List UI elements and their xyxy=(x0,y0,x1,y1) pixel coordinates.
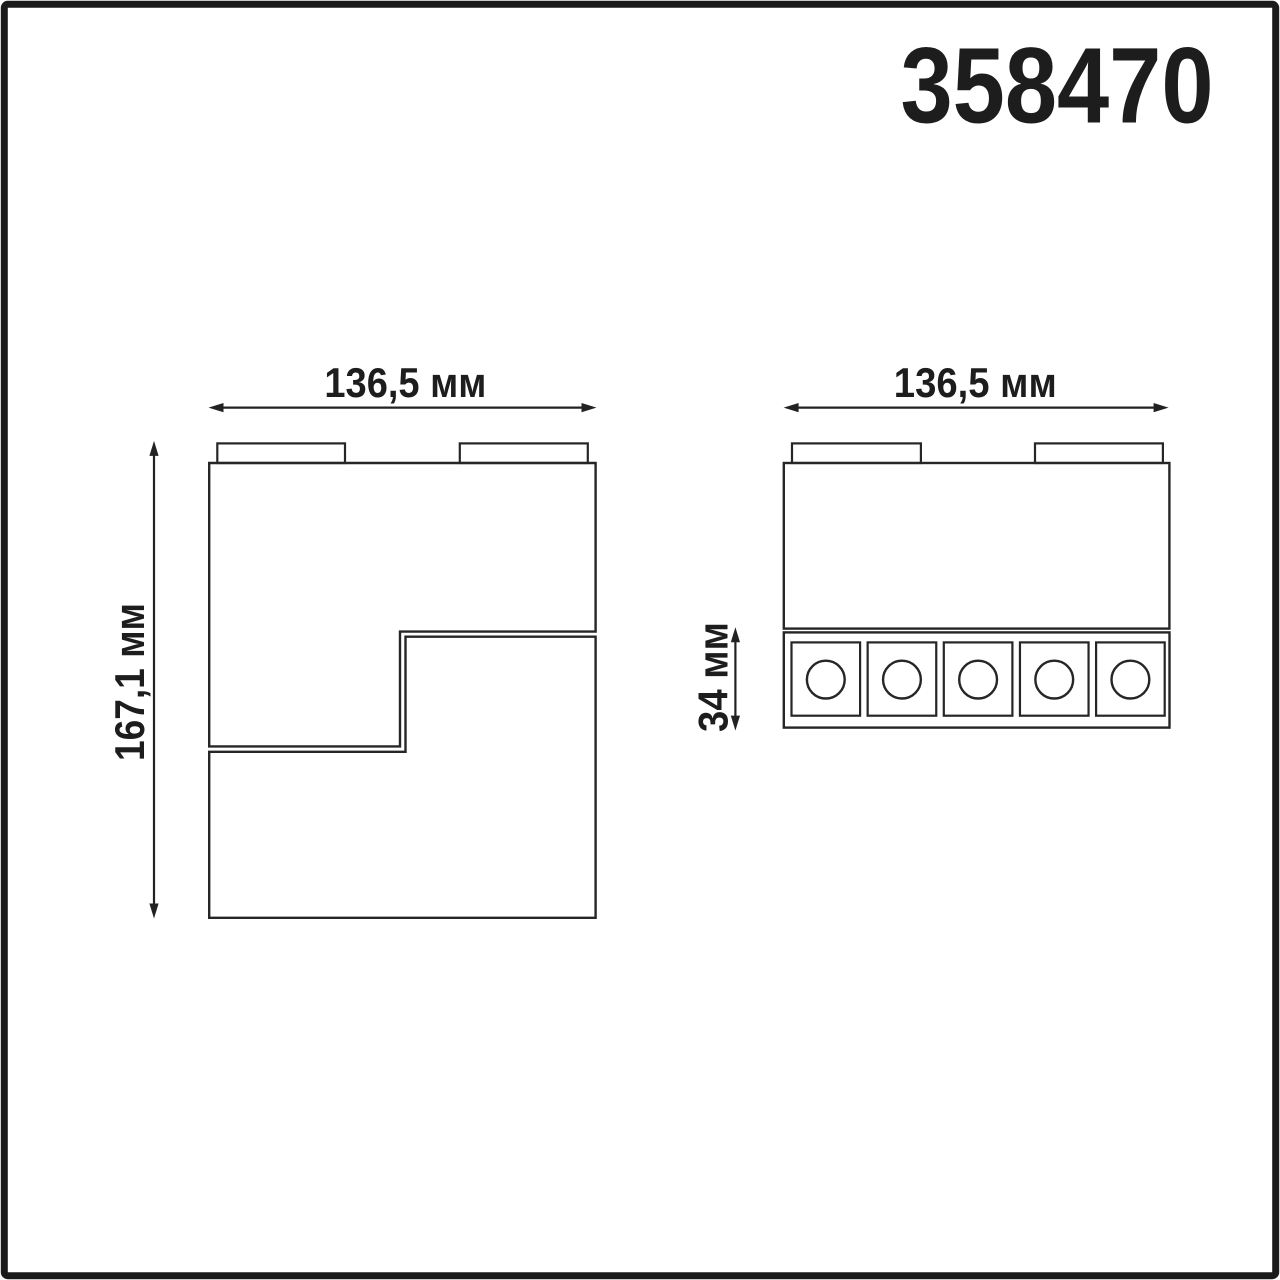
svg-text:358470: 358470 xyxy=(901,25,1214,146)
svg-text:34 мм: 34 мм xyxy=(689,622,736,732)
svg-text:167,1 мм: 167,1 мм xyxy=(106,603,153,761)
svg-text:136,5 мм: 136,5 мм xyxy=(324,359,486,406)
svg-text:136,5 мм: 136,5 мм xyxy=(894,359,1057,406)
